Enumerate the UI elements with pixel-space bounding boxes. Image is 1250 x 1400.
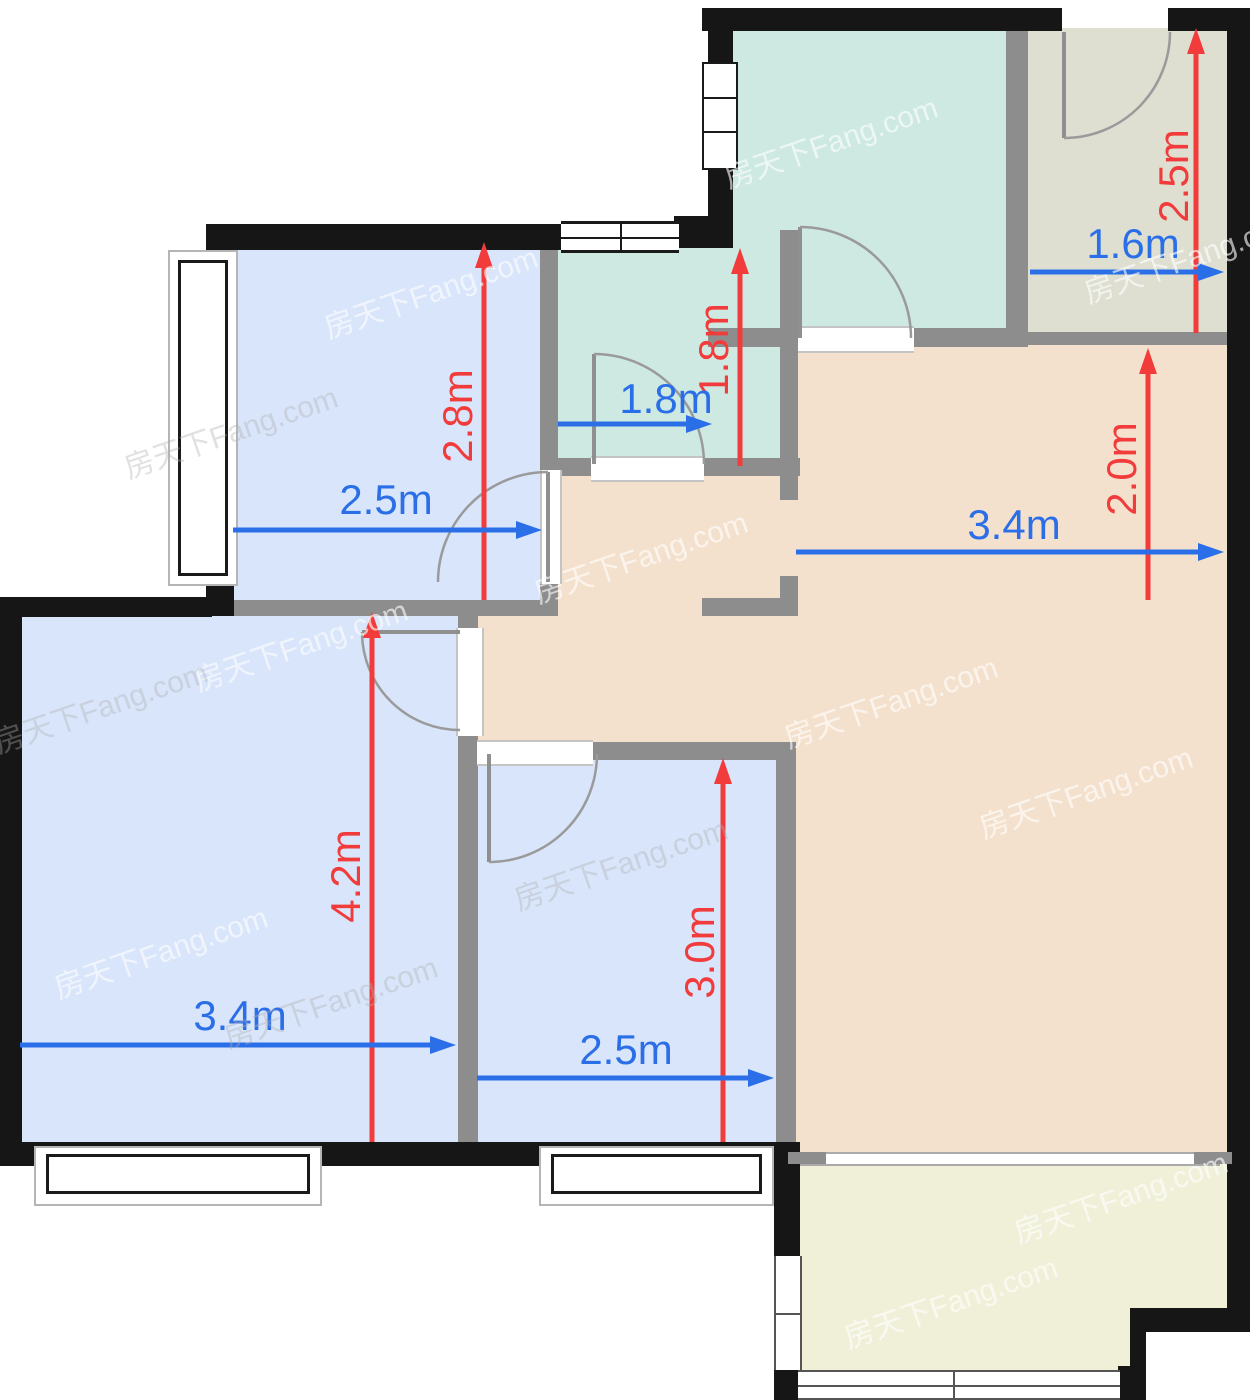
arrow-up-icon — [1139, 348, 1157, 374]
bedroom-middle-door-arc — [489, 754, 597, 862]
arrow-right-icon — [430, 1036, 456, 1054]
plan-overlay — [0, 0, 1250, 1400]
dimension-label: 4.2m — [325, 829, 367, 922]
arrow-up-icon — [475, 242, 493, 268]
arrow-right-icon — [516, 521, 542, 539]
dimension-label: 2.5m — [579, 1029, 672, 1071]
dimension-label: 3.4m — [193, 995, 286, 1037]
dimension-label: 1.6m — [1086, 223, 1179, 265]
floor-plan: 2.8m 1.8m 2.5m 2.0m 4.2m 3.0m 2.5m 1.8m … — [0, 0, 1250, 1400]
dimension-label: 2.5m — [1153, 129, 1195, 222]
dimension-label: 3.4m — [967, 504, 1060, 546]
dimension-label: 2.8m — [437, 369, 479, 462]
dimension-label: 3.0m — [679, 905, 721, 998]
dimension-label: 2.0m — [1101, 422, 1143, 515]
bedroom-left-door-arc — [362, 632, 460, 730]
kitchen-door-arc — [800, 227, 911, 338]
entry-door-arc — [1064, 32, 1170, 138]
arrow-up-icon — [714, 758, 732, 784]
arrow-up-icon — [731, 248, 749, 274]
arrow-up-icon — [363, 612, 381, 638]
arrow-right-icon — [1198, 543, 1224, 561]
arrow-right-icon — [748, 1069, 774, 1087]
arrow-up-icon — [1187, 28, 1205, 54]
dimension-label: 2.5m — [339, 479, 432, 521]
arrow-right-icon — [1198, 263, 1224, 281]
dimension-label: 1.8m — [619, 378, 712, 420]
